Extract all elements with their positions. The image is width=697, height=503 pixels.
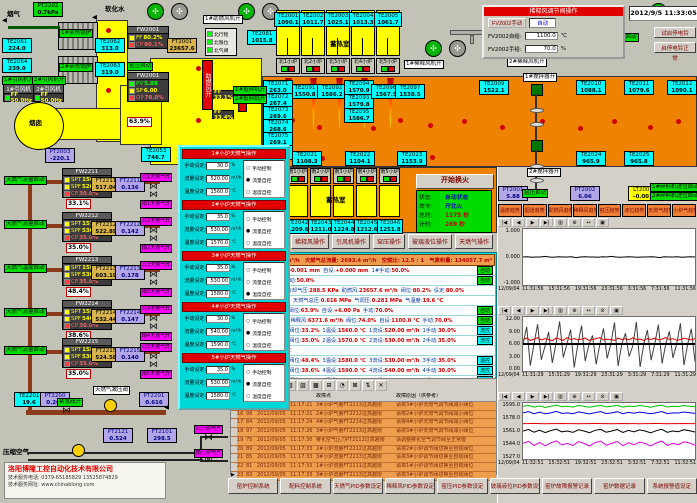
toolbar-icon[interactable]: ⇅ [362, 380, 374, 391]
status-label: 北小炉气开 [194, 425, 223, 434]
loop-mode-label: 天燃气流量自动 [4, 220, 47, 229]
x-axis-date: 12/09/04 [498, 373, 522, 378]
operation-button[interactable]: 稀释风操作 [291, 234, 329, 249]
nav-button[interactable]: 系统报警值设定 [647, 478, 697, 494]
burner-label: 北4小炉 [354, 59, 372, 65]
dilution-valve-popup: 稀释风调节阀操作 FV2002手动 自动 FV2002自给: 1100.0 ℃ … [482, 5, 625, 59]
y-axis-labels: 12.009.006.003.000.00 [498, 316, 522, 372]
temp-set-field[interactable]: 1580.0 [206, 392, 230, 400]
manual-set-field[interactable]: 35.0 [206, 213, 230, 221]
manual-set-field[interactable]: 30.0 [206, 162, 230, 170]
chart-toolbar-icon[interactable]: ⊕ [568, 392, 581, 401]
gas-valve-icon[interactable]: ⋈ [149, 323, 158, 332]
section-title: 5#小炉天燃气操作 [182, 353, 286, 363]
alarm-row[interactable]: 21 85 2012/09/05 11:17:33 3#小炉流量FT2213过高… [231, 454, 496, 463]
instrument-tag: TE2022 1104.1 [345, 151, 375, 166]
status-row: 总时: 1175 秒 [419, 210, 489, 219]
instrument-tag: TE2009 1522.1 [479, 80, 509, 95]
radio-flow-auto[interactable]: ●流量自控 [246, 327, 284, 339]
gas-valve-icon[interactable]: ⋈ [149, 279, 158, 288]
temp-set-field[interactable]: 1560.0 [206, 188, 230, 196]
operation-button[interactable]: 引风机操作 [332, 234, 370, 249]
status-label: 1#引风机开 [2, 76, 36, 85]
pid-fw2001-pressure[interactable]: FW2001 PV5.88 SP6.00 OP78.0% [127, 72, 169, 102]
run-lamp [5, 95, 10, 101]
burner-on-lamp [360, 176, 367, 182]
status-label: 1#碎料机进位自动 [650, 183, 697, 192]
soft-water-pipe [8, 26, 60, 29]
instrument-tag: TE2063 319.0 [95, 62, 125, 77]
nav-button[interactable]: 窑炉数据记录 [594, 478, 644, 494]
instrument-tag: TE2094 1570.9 [344, 80, 374, 95]
total-item: 天燃气总流量: 2693.4 m³/h [305, 256, 377, 264]
trend-buttons: 温度趋势烟道趋势助燃风趋势稀释风趋势窑压趋势液位趋势天燃气趋势小炉气趋势 [498, 204, 696, 217]
charger-indicator [238, 103, 247, 112]
temp-set-field[interactable]: 1580.0 [206, 290, 230, 298]
north-chamber: TE2004 1013.3 北4小炉 [351, 10, 375, 76]
toolbar-icon[interactable]: ◔ [336, 380, 348, 391]
toolbar-icon[interactable]: ▨ [297, 380, 309, 391]
flow-set-field[interactable]: 520.00 [206, 175, 230, 183]
burner-on-lamp [381, 66, 388, 72]
radio-temp-auto[interactable]: ○温度自控 [246, 390, 284, 402]
chart-toolbar-icon[interactable]: |◀ [498, 306, 511, 315]
temperature-trend-chart: |◀◀▶▶|▥⊕↔⊘▣ 1595.01578.01561.01544.01527… [498, 392, 696, 466]
instrument-tag: PT2003 -220.1 [45, 148, 75, 163]
radio-flow-auto[interactable]: ●流量自控 [246, 174, 284, 186]
chart-toolbar-icon[interactable]: ↔ [582, 306, 595, 315]
burner-on-lamp [356, 66, 363, 72]
air-flowmeter-icon [72, 444, 85, 457]
instrument-tag: TE2064 239.0 [2, 58, 32, 73]
status-label: 1#投料机开 [233, 86, 267, 95]
burner-port[interactable]: 南2小炉 [310, 168, 331, 184]
north-gas-open-label: 北1天燃气开 [140, 173, 172, 182]
loop-mode-label: 天燃气流量自动 [4, 308, 47, 317]
status-label: 天燃气减压阀 [93, 386, 130, 395]
company-info-box: 洛阳博隆工控自动化技术有限公司 技术服务电话: 0379-65185829 13… [4, 462, 166, 499]
burner-alarm-lamp [390, 176, 397, 182]
alarm-row[interactable]: 19 75 2012/09/05 11:17:30 雾化空气压力PT2112过高… [231, 437, 496, 446]
x-axis-labels: 11:31:2915:31:2919:31:2923:31:293:31:297… [522, 373, 696, 378]
instrument-tag: TE2024 965.9 [576, 151, 606, 166]
status-label: 1#稀释风机开 [404, 60, 444, 69]
burner-on-lamp [314, 176, 321, 182]
status-label: 蓄热室 [329, 40, 351, 48]
radio-temp-auto[interactable]: ○温度自控 [246, 186, 284, 198]
radio-manual[interactable]: ○手动控制 [246, 162, 284, 174]
section-title: 2#小炉天燃气操作 [182, 200, 286, 210]
south-gas-open-label: 南1天燃气开 [140, 200, 172, 209]
burner-label: 南3小炉 [334, 169, 352, 175]
chart-toolbar-icon[interactable]: ▣ [596, 218, 609, 227]
trend-button[interactable]: 稀释风趋势 [573, 204, 597, 217]
status-label: ◀ [163, 403, 170, 411]
legend-item: 北行程 [207, 30, 235, 38]
valve-position: 48.4% [66, 287, 91, 297]
instrument-tag: FT2101 298.5 [147, 428, 177, 443]
manual-set-field[interactable]: 30.0 [206, 315, 230, 323]
nav-button[interactable]: 窑压PID参数设定 [437, 478, 487, 494]
alarm-row[interactable]: 22 81 2012/09/05 11:17:33 1#小炉流量FT2111过高… [231, 463, 496, 472]
pid-comb-fan-b: FF 33.4% [212, 110, 234, 119]
legend-lamp [207, 31, 213, 37]
measure-point-icon [196, 118, 201, 123]
chart-toolbar-icon[interactable]: ▶| [540, 218, 553, 227]
toolbar-icon[interactable]: ✕ [375, 380, 387, 391]
instrument-tag: TE2011 1079.6 [624, 80, 654, 95]
operation-button[interactable]: 玻璃液位操作 [408, 234, 452, 249]
fv2002-auto-indicator[interactable]: 自动 [529, 18, 556, 28]
measure-point-icon [500, 125, 505, 130]
mode-badge: 自动 [477, 306, 493, 315]
status-label: 1#助燃风机开 [203, 15, 243, 24]
gas-valve-icon[interactable]: ⋈ [149, 235, 158, 244]
south-chamber: 南5小炉 TE2046 1251.8 [379, 168, 400, 234]
probe-stem [287, 38, 288, 56]
nav-button[interactable]: 配料控制系统 [280, 478, 330, 494]
burner-alarm-lamp [313, 66, 320, 72]
mode-badge: 温控 [477, 356, 493, 365]
valve-position: 35.0% [66, 243, 91, 253]
north-gas-open-label: 北3天燃气开 [140, 261, 172, 270]
radio-manual[interactable]: ○手动控制 [246, 366, 284, 378]
toolbar-icon[interactable]: ⊞ [323, 380, 335, 391]
fan-icon: ✣ [147, 3, 164, 20]
nav-button[interactable]: 天燃气PID参数设定 [333, 478, 383, 494]
level-trend-chart: |◀◀▶▶|▥⊕↔▣ 1.0000.000-1.000 12/09/0411:3… [498, 218, 696, 292]
north-gas-open-label: 北5天燃气开 [140, 343, 172, 352]
alarm-row[interactable]: 18 97 2012/09/05 11:17:26 3#小炉气量FT2213过高… [231, 428, 496, 437]
north-gas-open-label: 北4天燃气开 [140, 305, 172, 314]
toolbar-icon[interactable]: ▩ [310, 380, 322, 391]
burner-label: 北5小炉 [379, 59, 397, 65]
chart-toolbar[interactable]: |◀◀▶▶|▥⊕↔⊘▣ [498, 306, 696, 315]
instrument-tag: TE2093 1579.8 [344, 94, 374, 109]
loop-mode-label: 天燃气流量自动 [4, 176, 47, 185]
run-lamp [35, 95, 40, 101]
datetime-display: 2012/9/5 11:33:05 [629, 6, 697, 21]
north-gas-open-label: 北2天燃气开 [140, 217, 172, 226]
toolbar-icon[interactable]: ⊠ [349, 380, 361, 391]
measure-point-icon [462, 119, 467, 124]
instrument-tag: PT2002 6.06 [570, 186, 600, 201]
radio-temp-auto[interactable]: ●温度自控 [246, 288, 284, 300]
chart-toolbar-icon[interactable]: ▶ [526, 218, 539, 227]
popup-title: 稀释风调节阀操作 [484, 7, 623, 16]
burner-label: 南2小炉 [311, 169, 329, 175]
chamber-temp-tag: TE2046 1251.8 [377, 219, 403, 234]
chart-toolbar-icon[interactable]: ▶| [540, 306, 553, 315]
chart-toolbar-icon[interactable]: ▶ [526, 306, 539, 315]
nav-button[interactable]: 玻璃液位PID参数设定 [490, 478, 540, 494]
status-label: 63.9% [127, 117, 152, 127]
x-axis-labels: 11:32:5115:32:5119:32:5123:32:513:32:517… [522, 461, 696, 466]
fv2002-manual-button[interactable]: FV2002手动 [488, 18, 526, 28]
alarm-rows: 15 96 2012/09/05 11:17:21 3#小炉气量FT2213过高… [231, 402, 496, 481]
trend-button[interactable]: 液位趋势 [622, 204, 646, 217]
trend-button[interactable]: 小炉气趋势 [672, 204, 696, 217]
pid-fan2: 2#引风机 FF 50.0Hz [33, 84, 64, 102]
nav-button[interactable]: 稀释风PID参数设定 [385, 478, 435, 494]
burner-port[interactable]: 南3小炉 [333, 168, 354, 184]
alarm-row[interactable]: 16 98 2012/09/05 11:17:21 2#小炉气量FT2212过高… [231, 411, 496, 420]
port-gas-section: 2#小炉天燃气操作 手动设定:35.0% 流量设定:530.00m³/h 温度设… [182, 200, 286, 249]
fan-icon: ✣ [425, 40, 442, 57]
gas-valve-icon[interactable]: ⋈ [149, 191, 158, 200]
flow-set-field[interactable]: 530.00 [206, 226, 230, 234]
gas-main-pipe [26, 410, 166, 415]
port-gas-popup: 1#小炉天燃气操作 手动设定:30.0% 流量设定:520.00m³/h 温度设… [178, 145, 290, 410]
test-bell-button[interactable]: 试启停电铃 [654, 27, 696, 38]
instrument-tag: TE2023 1153.9 [397, 151, 427, 166]
loop-mode-label: 天燃气温度自动 [4, 264, 47, 273]
instrument-tag: TE2053 746.7 [141, 147, 171, 162]
burner-port[interactable]: 北2小炉 [301, 58, 325, 74]
duct-drop-1 [470, 35, 474, 44]
burner-label: 南5小炉 [380, 169, 398, 175]
burner-port[interactable]: 南1小炉 [287, 168, 308, 184]
north-chamber: TE2002 1011.7 北2小炉 [301, 10, 325, 76]
nav-button[interactable]: 窑炉控制系统 [228, 478, 278, 494]
burner-port[interactable]: 南5小炉 [379, 168, 400, 184]
measure-point-icon [612, 119, 617, 124]
bell-normal-button[interactable]: 启停电铃正常 [654, 42, 696, 53]
probe-stem [362, 38, 363, 56]
instrument-tag: TE2092 1586.2 [317, 84, 347, 99]
mode-badge: 流控 [477, 336, 493, 345]
trend-button[interactable]: 烟道趋势 [523, 204, 547, 217]
burner-on-lamp [281, 66, 288, 72]
fan-icon: ✣ [171, 3, 188, 20]
pid-fan1: 1#引风机 FF 50.0Hz [3, 84, 34, 102]
burner-alarm-lamp [344, 176, 351, 182]
status-label: 软化水 [104, 5, 126, 13]
status-label: 烟囱 [28, 119, 43, 127]
trend-button[interactable]: 助燃风趋势 [548, 204, 572, 217]
regenerator-cell [379, 185, 400, 217]
status-label: 2#投料机开 [233, 95, 267, 104]
chamber-temp-tag: TE2005 1061.7 [374, 12, 402, 27]
burner-alarm-lamp [298, 176, 305, 182]
measure-point-icon [428, 123, 433, 128]
burner-port[interactable]: 北4小炉 [351, 58, 375, 74]
status-label: 1#搅拌器开 [523, 73, 557, 82]
chart-toolbar-icon[interactable]: ▣ [610, 306, 623, 315]
radio-manual[interactable]: ○手动控制 [246, 264, 284, 276]
temp-set-field[interactable]: 1590.0 [206, 341, 230, 349]
chamber-temp-tag: TE2004 1013.3 [349, 12, 377, 27]
burner-port[interactable]: 北1小炉 [276, 58, 300, 74]
measure-point-icon [398, 118, 403, 123]
alarm-row[interactable]: 17 84 2012/09/05 11:17:24 4#小炉气量FT2214过高… [231, 419, 496, 428]
status-label: 烟气 [6, 10, 21, 18]
mode-radio-group: ○手动控制 ●流量自控 ○温度自控 [243, 211, 285, 249]
chart-toolbar-icon[interactable]: ▥ [554, 218, 567, 227]
reversal-status-panel: 状态: 自动状态 命令: 开北火 总时: 1175 秒 计时: 269 秒 [416, 190, 492, 233]
chart-toolbar-icon[interactable]: |◀ [498, 218, 511, 227]
instrument-tag: TE2012 1090.1 [667, 80, 697, 95]
stirrer-icon [530, 84, 542, 142]
measure-point-icon [106, 28, 111, 33]
company-name: 洛阳博隆工控自动化技术有限公司 [8, 464, 162, 474]
fv2002-manual-setpoint-field[interactable]: 70.0 [525, 45, 558, 53]
operation-buttons: 稀释风操作引风机操作窑压操作玻璃液位操作天燃气操作 [291, 234, 493, 249]
north-air-valve-icon[interactable]: ⋈ [204, 434, 213, 443]
radio-manual[interactable]: ○手动控制 [246, 315, 284, 327]
status-row: 状态: 自动状态 [419, 192, 489, 201]
x-axis-date: 12/09/04 [498, 461, 522, 466]
measure-point-icon [196, 66, 201, 71]
chart-toolbar-icon[interactable]: ▶ [526, 392, 539, 401]
legend-lamp [207, 47, 213, 53]
status-label: 紧急阀开 [57, 398, 83, 407]
operation-button[interactable]: 窑压操作 [373, 234, 405, 249]
chart-toolbar-icon[interactable]: ▥ [554, 306, 567, 315]
company-website: 技术服务网址: www.chinablong.com [8, 481, 162, 488]
burner-label: 北3小炉 [329, 59, 347, 65]
south-gas-open-label: 南2天燃气开 [140, 244, 172, 253]
status-label: 2#稀释风机开 [507, 58, 547, 67]
manual-set-field[interactable]: 35.0 [206, 264, 230, 272]
regenerator-cell [287, 185, 308, 217]
mode-badge: 自动 [477, 276, 493, 285]
burner-alarm-lamp [363, 66, 370, 72]
bottom-navigation: 窑炉控制系统配料控制系统天燃气PID参数设定稀释风PID参数设定窑压PID参数设… [228, 478, 697, 494]
operation-button[interactable]: 天燃气操作 [455, 234, 493, 249]
nav-button[interactable]: 窑炉故障报警记录 [542, 478, 592, 494]
instrument-tag: TE2061 224.0 [2, 38, 32, 53]
status-label: 蓄热室 [325, 196, 347, 204]
burner-port[interactable]: 南4小炉 [356, 168, 377, 184]
measure-point-icon [430, 155, 435, 160]
burner-label: 北1小炉 [279, 59, 297, 65]
burner-port[interactable]: 北5小炉 [376, 58, 400, 74]
chart-toolbar-icon[interactable]: ▣ [610, 392, 623, 401]
chart-toolbar-icon[interactable]: ⊕ [568, 306, 581, 315]
chamber-temp-tag: TE2002 1011.7 [299, 12, 327, 27]
chart-toolbar-icon[interactable]: ⊘ [596, 306, 609, 315]
mode-badge: 流控 [477, 326, 493, 335]
radio-temp-auto[interactable]: ○温度自控 [246, 237, 284, 249]
burner-on-lamp [331, 66, 338, 72]
chart-toolbar-icon[interactable]: ↔ [582, 392, 595, 401]
burner-port[interactable]: 北3小炉 [326, 58, 350, 74]
instrument-tag: TE2010 1088.1 [576, 80, 606, 95]
chart-toolbar[interactable]: |◀◀▶▶|▥⊕↔⊘▣ [498, 392, 696, 401]
status-label: 窑压自动 [127, 62, 153, 71]
pid-fw2001-fan[interactable]: FW2001 FF80.2% CP80.1% [127, 26, 169, 49]
south-chamber: 南4小炉 TE2045 1212.6 [356, 168, 377, 234]
chart-plot [522, 228, 696, 286]
chart-toolbar[interactable]: |◀◀▶▶|▥⊕↔▣ [498, 218, 696, 227]
y-axis-labels: 1595.01578.01561.01544.01527.0 [498, 402, 522, 460]
chart-toolbar-icon[interactable]: |◀ [498, 392, 511, 401]
flow-set-field[interactable]: 540.00 [206, 328, 230, 336]
burner-alarm-lamp [388, 66, 395, 72]
north-chamber: TE2005 1061.7 北5小炉 [376, 10, 400, 76]
radio-manual[interactable]: ○手动控制 [246, 213, 284, 225]
mode-badge: 流控 [477, 366, 493, 375]
status-row: 命令: 开北火 [419, 201, 489, 210]
trend-button[interactable]: 窑压趋势 [598, 204, 622, 217]
measure-point-icon [106, 88, 111, 93]
probe-stem [312, 38, 313, 56]
instrument-tag: PT2202 0.7kPa [33, 2, 63, 17]
burner-alarm-lamp [338, 66, 345, 72]
chart-toolbar-icon[interactable]: ◀ [512, 218, 525, 227]
radio-temp-auto[interactable]: ○温度自控 [246, 339, 284, 351]
mode-badge: 自动 [477, 316, 493, 325]
instrument-tag: TE2062 313.0 [95, 38, 125, 53]
valve-position: 33.1% [66, 199, 91, 209]
instrument-tag: TE2025 965.8 [624, 151, 654, 166]
port-gas-section: 1#小炉天燃气操作 手动设定:30.0% 流量设定:520.00m³/h 温度设… [182, 149, 286, 198]
loop-mode-label: 天燃气流量自动 [4, 346, 47, 355]
instrument-tag: TE2095 1586.7 [344, 108, 374, 123]
section-title: 1#小炉天燃气操作 [182, 149, 286, 159]
temp-set-field[interactable]: 1570.0 [206, 239, 230, 247]
radio-flow-auto[interactable]: ●流量自控 [246, 225, 284, 237]
valve-position: 35.0% [66, 369, 91, 379]
chart-toolbar-icon[interactable]: ⊘ [596, 392, 609, 401]
radio-flow-auto[interactable]: ●流量自控 [246, 378, 284, 390]
burner-on-lamp [383, 176, 390, 182]
status-label: ◀ [1, 16, 8, 24]
chart-toolbar-icon[interactable]: ↔ [582, 218, 595, 227]
status-row: 计时: 269 秒 [419, 219, 489, 228]
chart-toolbar-icon[interactable]: ▶| [540, 392, 553, 401]
status-label: 窑压自动 [522, 189, 548, 198]
chart-toolbar-icon[interactable]: ▥ [554, 392, 567, 401]
trend-button[interactable]: 温度趋势 [498, 204, 522, 217]
chart-toolbar-icon[interactable]: ◀ [512, 392, 525, 401]
instrument-tag: TE2081 1015.8 [247, 30, 277, 45]
chart-toolbar-icon[interactable]: ◀ [512, 306, 525, 315]
chamber-temp-tag: TE2003 1025.1 [324, 12, 352, 27]
burner-alarm-lamp [288, 66, 295, 72]
mode-radio-group: ○手动控制 ○流量自控 ●温度自控 [243, 262, 285, 300]
measure-point-icon [648, 125, 653, 130]
x-axis-date: 12/09/04 [498, 287, 522, 292]
mode-radio-group: ○手动控制 ●流量自控 ○温度自控 [243, 160, 285, 198]
chart-toolbar-icon[interactable]: ⊕ [568, 218, 581, 227]
gas-flowmeter-icon [104, 399, 117, 412]
status-label: 南小炉气开 [194, 449, 223, 458]
fv2002-auto-setpoint-field[interactable]: 1100.0 [525, 32, 558, 40]
instrument-tag: TE2097 1538.5 [395, 84, 425, 99]
start-reversal-button[interactable]: 开始换火 [416, 174, 494, 189]
measure-point-icon [317, 125, 322, 130]
port-gas-section: 5#小炉天燃气操作 手动设定:35.0% 流量设定:530.00m³/h 温度设… [182, 353, 286, 402]
alarm-row[interactable]: 20 89 2012/09/05 11:17:33 2#小炉流量FT2212过高… [231, 446, 496, 455]
total-item: 空燃比: 12.5 : 1 [382, 256, 424, 264]
instrument-tag: TE2021 1108.3 [292, 151, 322, 166]
manual-set-field[interactable]: 35.0 [206, 366, 230, 374]
radio-flow-auto[interactable]: ○流量自控 [246, 276, 284, 288]
gas-valve-icon[interactable]: ⋈ [149, 361, 158, 370]
chart-plot [522, 316, 696, 372]
flow-set-field[interactable]: 530.00 [206, 379, 230, 387]
pid-comb-fan-a: FF 33.1% [212, 90, 234, 99]
legend-item: 北气阀 [207, 46, 235, 54]
south-gas-open-label: 南5天燃气开 [140, 370, 172, 379]
trend-button[interactable]: 天燃气趋势 [647, 204, 671, 217]
north-chamber: TE2001 1090.1 北1小炉 [276, 10, 300, 76]
shutoff-valve-icon[interactable]: ⋈ [62, 407, 71, 416]
probe-stem [387, 38, 388, 56]
flow-set-field[interactable]: 530.00 [206, 277, 230, 285]
